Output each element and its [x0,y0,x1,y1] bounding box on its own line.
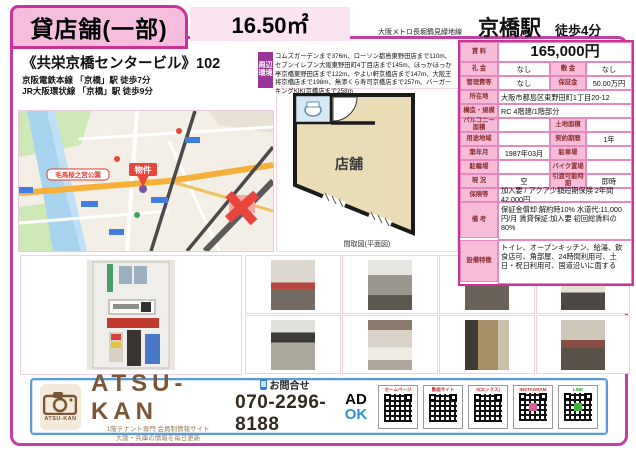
cell-label: 設備特徴 [460,240,498,282]
cell-label: 契約期間 [550,132,586,146]
qr-label: X(エックス) [476,387,500,393]
surroundings-box: 周辺 環境 コムズガーデンまで376m、ローソン都島東野田店まで110m、セブン… [258,52,456,88]
brand-tagline-1: 1階テナント専門 会員制情報サイト [107,426,210,434]
qr-label: INSTAGRAM [520,387,547,392]
cell-label: 保険等 [460,188,498,202]
cell-value: 大阪市都島区東野田町1丁目20-12 [498,90,632,104]
cell-value: なし [498,62,550,76]
table-row: 保険等 加入要 / アクア少額短期保険 2年間 42,000円 [460,188,632,202]
qr-code-strip: ホームページ 動画サイト X(エックス) INSTAGRAM LINE [378,385,598,429]
cell-value [498,118,550,132]
photo-main-exterior [20,255,242,375]
photo-thumb-interior [536,315,630,374]
qr-code-icon [519,393,547,421]
brand-block: ATSU-KAN 1階テナント専門 会員制情報サイト 大阪・兵庫の情報を毎日更新 [91,370,225,443]
cell-label: 用途地域 [460,132,498,146]
cell-label: 駐車場 [550,146,586,160]
storefront-photo [271,260,315,310]
footer-bar: ATSU-KAN ATSU-KAN 1階テナント専門 会員制情報サイト 大阪・兵… [30,378,608,435]
table-row: 所在地 大阪市都島区東野田町1丁目20-12 [460,90,632,104]
floor-plan-panel: 店舗 間取図(平面図) [276,88,458,252]
brand-tagline-2: 大阪・兵庫の情報を毎日更新 [116,435,201,443]
property-detail-table: 賃 料 165,000円 礼 金 なし 敷 金 なし 管理費等 なし 保証金 5… [458,40,634,286]
rent-value: 165,000円 [498,42,632,62]
rent-label: 賃 料 [460,42,498,62]
cell-label: バイク置場 [550,160,586,174]
logo-text: ATSU-KAN [44,416,76,422]
shelves-photo [465,320,509,370]
cell-label: 敷 金 [550,62,586,76]
cell-value: なし [498,76,550,90]
floor-area: 16.50㎡ [190,7,350,41]
location-map: 毛馬桜之宮公園 物件 [18,110,274,252]
qr-line: LINE [558,385,598,429]
map-property-label: 物件 [134,165,152,175]
cell-value [498,160,550,174]
station-name: 京橋駅 [478,12,541,42]
table-row: 備 考 保証金償却:解約時10% 水道代:11,000円/月 賃貸保証:加入要 … [460,202,632,240]
cell-label: 築年月 [460,146,498,160]
cell-label: 土地面積 [550,118,586,132]
qr-code-icon [384,394,412,422]
surroundings-tab-bottom: 環境 [259,70,273,78]
floor-plan-room-label: 店舗 [335,156,363,172]
qr-instagram: INSTAGRAM [513,385,553,429]
ok-text: OK [345,407,368,422]
table-row: 管理費等 なし 保証金 50.00万円 [460,76,632,90]
map-park-label: 毛馬桜之宮公園 [55,170,101,179]
listing-type-title: 貸店舗(一部) [10,5,188,49]
photo-thumb-shelves [439,315,535,374]
photo-thumb-kitchen-1 [342,255,438,314]
qr-homepage: ホームページ [378,385,418,429]
table-row: 賃 料 165,000円 [460,42,632,62]
map-graphic: 毛馬桜之宮公園 物件 [19,111,273,251]
brand-name: ATSU-KAN [91,370,225,426]
camera-icon [43,391,77,415]
table-row: 設備特徴 トイレ、オープンキッチン、給湯、飲食店可、角部屋、24時間利用可、土日… [460,240,632,284]
photo-thumb-toilet [342,315,438,374]
cell-label: 構造・規模 [460,104,498,118]
cell-label: バルコニー面積 [460,118,498,132]
cell-value: 1年 [586,132,632,146]
station-info: 京橋駅 徒歩4分 [478,12,601,42]
qr-code-icon [474,394,502,422]
cell-label: 保証金 [550,76,586,90]
kitchen-photo-2 [271,320,315,370]
ad-ok-badge: AD OK [344,392,368,422]
floor-plan-graphic: 店舗 [277,89,457,239]
building-info: 《共栄京橋センタービル》102 京阪電鉄本線 「京橋」駅 徒歩7分 JR大阪環状… [22,52,257,98]
phone-number: 070-2296-8188 [235,392,334,436]
cell-value: なし [586,62,632,76]
ad-text: AD [345,392,367,407]
cell-value [586,146,632,160]
floor-plan-caption: 間取図(平面図) [277,239,457,249]
cell-value [498,132,550,146]
cell-label: 駐輪場 [460,160,498,174]
cell-value: 1987年03月 [498,146,550,160]
qr-x: X(エックス) [468,385,508,429]
cell-label: 備 考 [460,202,498,238]
cell-value: 50.00万円 [586,76,632,90]
surroundings-tab: 周辺 環境 [258,52,273,88]
qr-code-icon [564,393,592,421]
cell-value [586,118,632,132]
building-name: 《共栄京橋センタービル》102 [22,52,257,73]
station-walk-time: 徒歩4分 [555,20,601,39]
cell-label: 現 況 [460,174,498,188]
cell-value [586,160,632,174]
toilet-photo [368,320,412,370]
photo-thumb-kitchen-2 [245,315,341,374]
qr-label: LINE [573,387,583,392]
company-logo: ATSU-KAN [40,384,81,430]
contact-label: お問合せ [270,377,310,392]
qr-label: ホームページ [385,387,412,393]
table-row: 礼 金 なし 敷 金 なし [460,62,632,76]
cell-label: 礼 金 [460,62,498,76]
table-row: バルコニー面積 土地面積 [460,118,632,132]
table-row: 駐輪場 バイク置場 [460,160,632,174]
table-row: 用途地域 契約期間 1年 [460,132,632,146]
cell-value: RC 4階建/1階部分 [498,104,632,118]
table-row: 構造・規模 RC 4階建/1階部分 [460,104,632,118]
flyer-page: 貸店舗(一部) 16.50㎡ 大阪メトロ長堀鶴見緑地線 京橋駅 徒歩4分 《共栄… [0,0,636,450]
contact-block: お問合せ 070-2296-8188 [235,377,334,436]
rail-access-2: JR大阪環状線 「京橋」駅 徒歩9分 [22,86,257,97]
metro-line-label: 大阪メトロ長堀鶴見緑地線 [378,27,462,37]
kitchen-photo-1 [368,260,412,310]
phone-icon [260,379,267,390]
surroundings-tab-top: 周辺 [259,62,273,70]
photo-thumb-storefront [245,255,341,314]
cell-value: 加入要 / アクア少額短期保険 2年間 42,000円 [498,188,632,202]
surroundings-text: コムズガーデンまで376m、ローソン都島東野田店まで110m、セブンイレブン大阪… [273,52,456,88]
qr-video-site: 動画サイト [423,385,463,429]
rail-access-1: 京阪電鉄本線 「京橋」駅 徒歩7分 [22,75,257,86]
cell-label: 所在地 [460,90,498,104]
building-exterior-photo [87,260,175,370]
cell-label: 管理費等 [460,76,498,90]
cell-value: トイレ、オープンキッチン、給湯、飲食店可、角部屋、24時間利用可、土日・祝日利用… [498,240,632,284]
interior-photo [561,320,605,370]
qr-code-icon [429,394,457,422]
cell-value: 保証金償却:解約時10% 水道代:11,000円/月 賃貸保証:加入要 初回総賃… [498,202,632,240]
qr-label: 動画サイト [432,387,455,393]
table-row: 築年月 1987年03月 駐車場 [460,146,632,160]
